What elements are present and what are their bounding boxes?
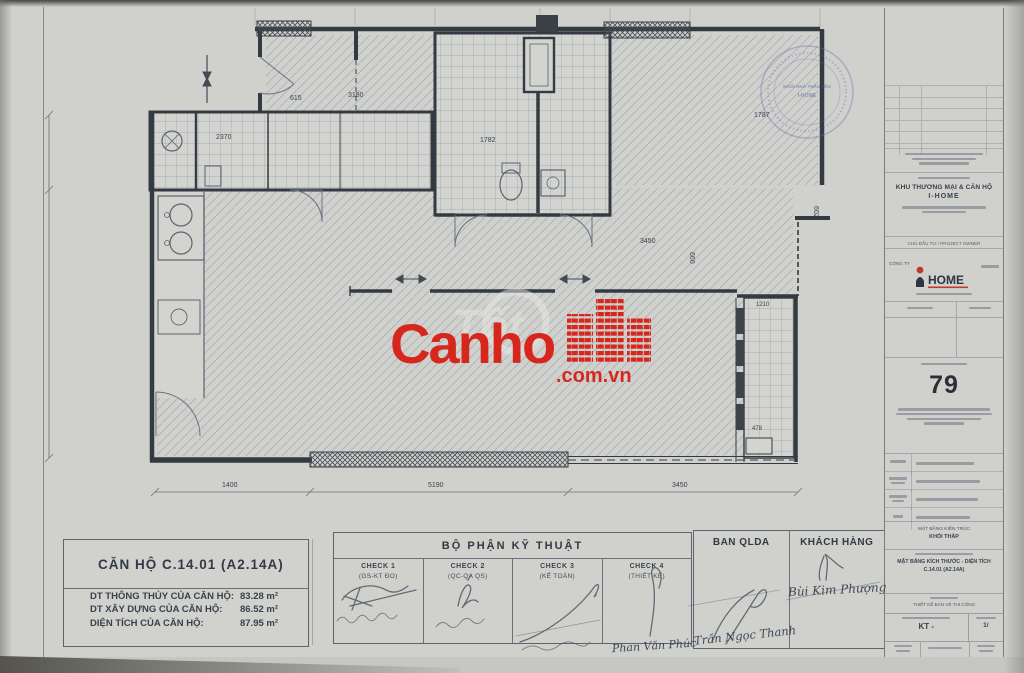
approval-table: BAN QLDA KHÁCH HÀNG xyxy=(693,530,885,649)
qlda-label: BAN QLDA xyxy=(713,537,770,548)
group-line1: MẶT BẰNG KIẾN TRÚC xyxy=(885,527,1003,532)
canho-watermark: Canho .com.vn xyxy=(390,298,651,387)
scan-edge-top xyxy=(0,0,1024,7)
company-logo-row: CÔNG TY HOME xyxy=(885,253,1003,301)
scan-edge-right xyxy=(1004,0,1024,673)
dim-label: 1210 xyxy=(756,302,770,308)
revision-notes xyxy=(885,149,1003,173)
customer-label: KHÁCH HÀNG xyxy=(800,537,873,548)
legend-label: DT XÂY DỰNG CỦA CĂN HỘ: xyxy=(90,604,222,615)
phase-label: THIẾT KẾ BẢN VẼ THI CÔNG xyxy=(885,602,1003,607)
check-3-cell: CHECK 3 (KẾ TOÁN) xyxy=(513,559,603,643)
titleblock-footer xyxy=(885,641,1003,658)
legend-value: 86.52 m² xyxy=(240,604,298,615)
sheet-number: 79 xyxy=(885,371,1003,400)
legend-value: 83.28 m² xyxy=(240,591,298,602)
dim-label: 3450 xyxy=(640,238,656,245)
canho-brand-text: Canho xyxy=(390,312,555,375)
dim-label: 1400 xyxy=(222,482,238,489)
unit-legend-table: CĂN HỘ C.14.01 (A2.14A) DT THÔNG THỦY CỦ… xyxy=(63,539,309,647)
drawing-code: KT - xyxy=(885,622,968,631)
canho-suffix-text: .com.vn xyxy=(556,365,632,387)
dim-label: 1782 xyxy=(480,137,496,144)
code-scale-row: KT - 1/ xyxy=(885,613,1003,641)
empty-cells-row xyxy=(885,317,1003,357)
drawing-title-line2: C.14.01 (A2.14A) xyxy=(885,567,1003,573)
ihome-logo: HOME xyxy=(911,265,977,291)
scanned-floorplan-sheet: { "page":{"sheet_bg":"#d0d1cd","accent_r… xyxy=(0,0,1024,673)
legend-value: 87.95 m² xyxy=(240,618,298,629)
owner-label-row: CHỦ ĐẦU TƯ / PROJECT OWNER xyxy=(885,236,1003,249)
dim-label: 5190 xyxy=(428,482,444,489)
qlda-cell: BAN QLDA xyxy=(694,531,790,648)
legend-row-clear-area: DT THÔNG THỦY CỦA CĂN HỘ: 83.28 m² xyxy=(64,589,308,602)
check-name: CHECK 1 xyxy=(361,563,395,570)
revision-table xyxy=(885,85,1003,149)
company-label: CÔNG TY xyxy=(889,261,910,266)
legend-outer-line xyxy=(312,539,313,645)
dim-label: 3180 xyxy=(348,92,364,99)
ihome-logo-text: HOME xyxy=(928,273,964,287)
title-block: KHU THƯƠNG MẠI & CĂN HỘ I-HOME CHỦ ĐẦU T… xyxy=(884,8,1004,658)
dim-label: 2370 xyxy=(216,134,232,141)
check-1-cell: CHECK 1 (GS-KT ĐO) xyxy=(334,559,424,643)
dim-label: 615 xyxy=(290,95,302,102)
legend-row-built-area: DT XÂY DỰNG CỦA CĂN HỘ: 86.52 m² xyxy=(64,602,308,615)
project-name-line1: KHU THƯƠNG MẠI & CĂN HỘ xyxy=(885,184,1003,191)
drawing-title-section: MẶT BẰNG KÍCH THƯỚC - DIỆN TÍCH C.14.01 … xyxy=(885,549,1003,593)
customer-cell: KHÁCH HÀNG xyxy=(790,531,885,648)
check-role: (QC-QA QS) xyxy=(448,573,487,580)
legend-label: DIỆN TÍCH CỦA CĂN HỘ: xyxy=(90,618,204,629)
sheet-number-section: 79 xyxy=(885,357,1003,453)
dim-label: 3450 xyxy=(672,482,688,489)
stamp-line1: NGÔI NHÀ THÂN YÊU xyxy=(783,82,831,89)
group-line2: KHỐI THÁP xyxy=(885,534,1003,540)
dim-label: 478 xyxy=(752,426,763,432)
legend-row-total-area: DIỆN TÍCH CỦA CĂN HỘ: 87.95 m² xyxy=(64,615,308,628)
legend-label: DT THÔNG THỦY CỦA CĂN HỘ: xyxy=(90,591,234,602)
project-name-line2: I-HOME xyxy=(885,193,1003,200)
sheet-frame-left xyxy=(43,6,44,658)
drawing-scale: 1/ xyxy=(969,622,1003,629)
check-4-cell: CHECK 4 (THIẾT KẾ) xyxy=(603,559,692,643)
check-name: CHECK 4 xyxy=(630,563,664,570)
drawing-title-line1: MẶT BẰNG KÍCH THƯỚC - DIỆN TÍCH xyxy=(885,559,1003,565)
check-name: CHECK 2 xyxy=(451,563,485,570)
check-role: (GS-KT ĐO) xyxy=(359,573,398,580)
check-role: (THIẾT KẾ) xyxy=(629,573,665,580)
drawing-group-section: MẶT BẰNG KIẾN TRÚC KHỐI THÁP xyxy=(885,521,1003,549)
check-2-cell: CHECK 2 (QC-QA QS) xyxy=(424,559,514,643)
tech-table-title: BỘ PHẬN KỸ THUẬT xyxy=(334,533,691,559)
check-name: CHECK 3 xyxy=(540,563,574,570)
check-role: (KẾ TOÁN) xyxy=(540,573,575,580)
scan-edge-left xyxy=(0,0,12,673)
dim-label: 660 xyxy=(688,252,695,264)
phase-section: THIẾT KẾ BẢN VẼ THI CÔNG xyxy=(885,593,1003,613)
unit-title: CĂN HỘ C.14.01 (A2.14A) xyxy=(64,540,308,589)
info-cells-row xyxy=(885,301,1003,317)
stamp-line2: I-HOME xyxy=(798,93,817,99)
project-title-section: KHU THƯƠNG MẠI & CĂN HỘ I-HOME xyxy=(885,174,1003,234)
tech-department-table: BỘ PHẬN KỸ THUẬT CHECK 1 (GS-KT ĐO) CHEC… xyxy=(333,532,692,644)
staff-rows xyxy=(885,453,1003,521)
dim-label: 602 xyxy=(812,206,819,218)
kitchen-floor xyxy=(151,190,204,398)
